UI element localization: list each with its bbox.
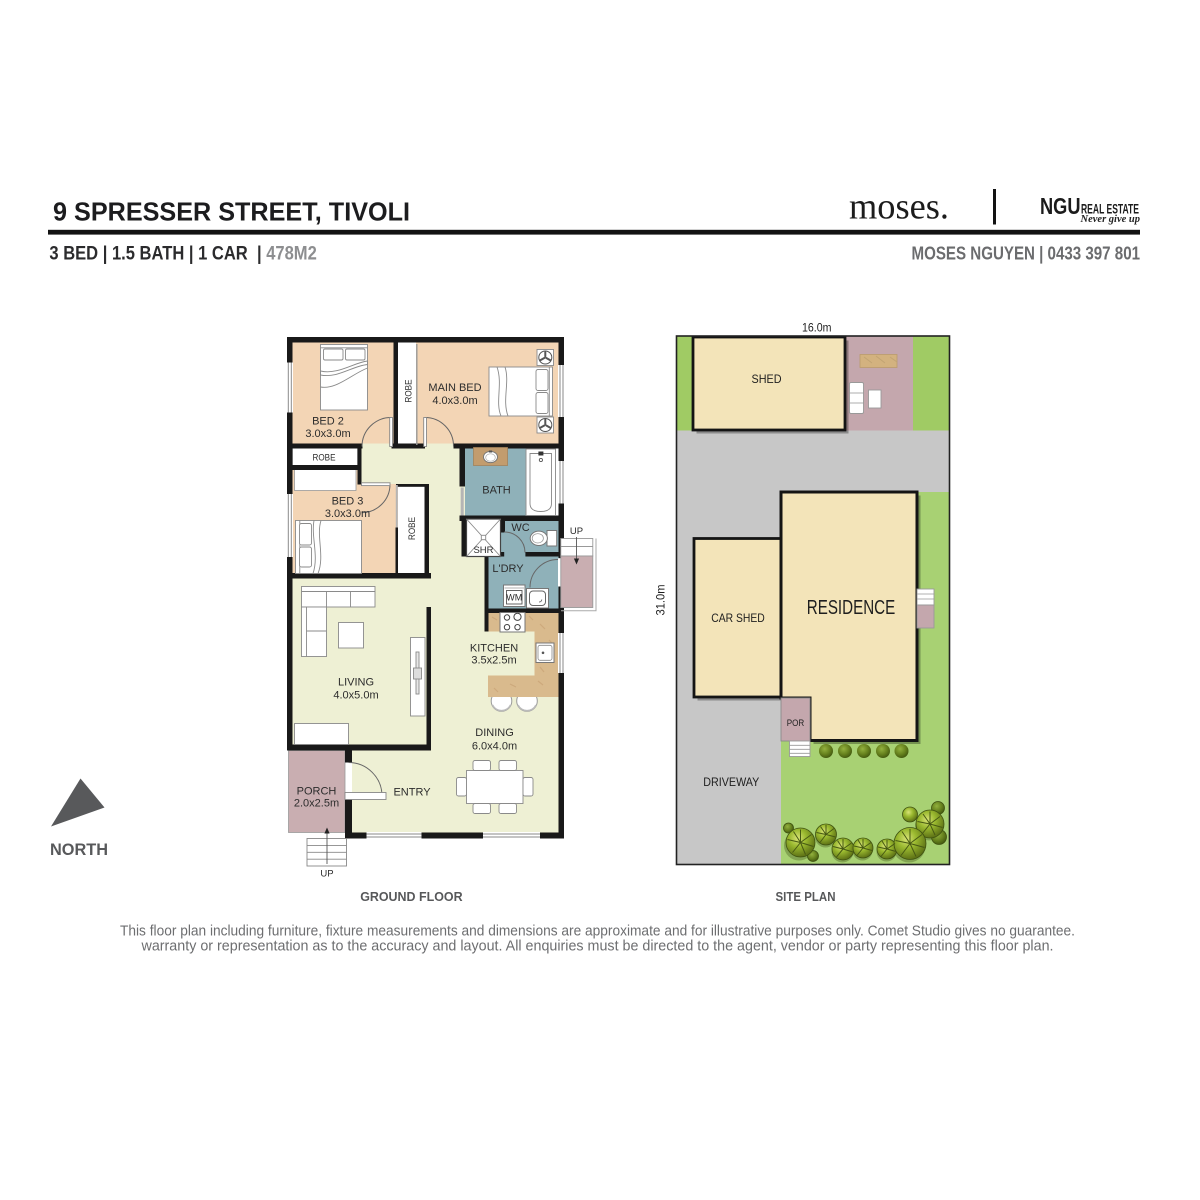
- svg-text:SHED: SHED: [752, 372, 782, 386]
- svg-text:BATH: BATH: [482, 485, 511, 497]
- svg-text:WM: WM: [506, 593, 522, 603]
- svg-text:WC: WC: [511, 522, 529, 534]
- svg-text:ENTRY: ENTRY: [393, 787, 431, 799]
- svg-text:LIVING: LIVING: [338, 677, 374, 689]
- svg-text:DRIVEWAY: DRIVEWAY: [703, 775, 759, 789]
- svg-text:BED 3: BED 3: [332, 496, 364, 508]
- svg-text:SITE PLAN: SITE PLAN: [776, 889, 836, 904]
- svg-text:GROUND FLOOR: GROUND FLOOR: [360, 889, 463, 904]
- svg-text:moses.: moses.: [849, 187, 949, 228]
- svg-text:4.0x5.0m: 4.0x5.0m: [333, 690, 378, 702]
- svg-text:MAIN BED: MAIN BED: [428, 382, 481, 394]
- svg-text:MOSES NGUYEN | 0433 397 801: MOSES NGUYEN | 0433 397 801: [912, 242, 1141, 263]
- svg-text:31.0m: 31.0m: [656, 585, 668, 616]
- svg-text:ROBE: ROBE: [404, 380, 415, 403]
- svg-text:CAR SHED: CAR SHED: [711, 611, 765, 625]
- svg-text:warranty or representation as: warranty or representation as to the acc…: [141, 938, 1054, 955]
- svg-text:SHR: SHR: [473, 545, 493, 556]
- svg-text:9 SPRESSER STREET, TIVOLI: 9 SPRESSER STREET, TIVOLI: [53, 199, 410, 227]
- svg-text:PORCH: PORCH: [297, 786, 337, 798]
- svg-text:NORTH: NORTH: [50, 840, 108, 859]
- svg-text:3 BED | 1.5 BATH | 1 CAR | 47: 3 BED | 1.5 BATH | 1 CAR | 478M2: [49, 243, 317, 265]
- svg-text:RESIDENCE: RESIDENCE: [807, 597, 896, 619]
- svg-text:ROBE: ROBE: [407, 517, 418, 540]
- svg-text:NGU: NGU: [1040, 193, 1081, 219]
- svg-text:ROBE: ROBE: [313, 453, 336, 464]
- svg-text:Never give up: Never give up: [1080, 214, 1140, 225]
- svg-text:DINING: DINING: [475, 727, 514, 739]
- svg-text:L'DRY: L'DRY: [492, 563, 524, 575]
- svg-text:3.5x2.5m: 3.5x2.5m: [471, 655, 516, 667]
- svg-text:16.0m: 16.0m: [802, 323, 832, 335]
- svg-text:POR: POR: [787, 718, 805, 729]
- svg-text:6.0x4.0m: 6.0x4.0m: [472, 741, 517, 753]
- svg-text:3.0x3.0m: 3.0x3.0m: [325, 508, 370, 520]
- svg-text:2.0x2.5m: 2.0x2.5m: [294, 798, 339, 810]
- svg-text:3.0x3.0m: 3.0x3.0m: [305, 428, 350, 440]
- svg-text:KITCHEN: KITCHEN: [470, 643, 518, 655]
- svg-text:4.0x3.0m: 4.0x3.0m: [432, 395, 477, 407]
- svg-text:UP: UP: [570, 526, 583, 537]
- svg-text:BED 2: BED 2: [312, 416, 344, 428]
